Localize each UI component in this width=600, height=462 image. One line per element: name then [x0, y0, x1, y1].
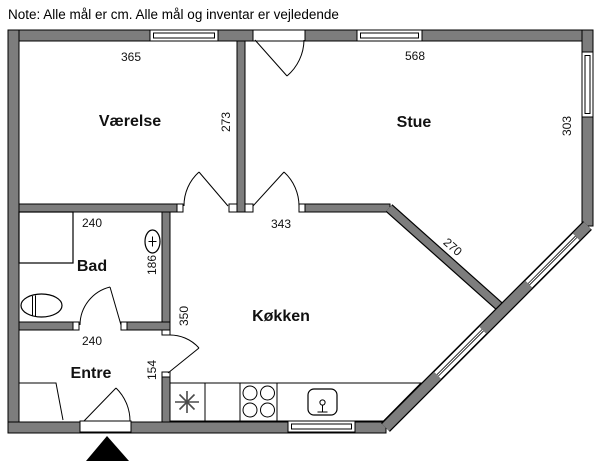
window-stue-top: [357, 30, 422, 41]
dim-vaerelse-depth: 273: [219, 112, 233, 132]
dim-stue-depth: 303: [560, 116, 574, 136]
dim-stue-width: 568: [405, 49, 425, 63]
room-label-entre: Entre: [71, 365, 112, 382]
entrance-door-opening: [80, 421, 131, 432]
balcony-door-opening: [253, 30, 305, 41]
toilet-icon: [21, 294, 62, 317]
window-vaerelse: [150, 30, 218, 41]
dim-bad-width: 240: [82, 216, 102, 230]
washbasin-icon: [145, 230, 160, 253]
dim-koekken-opening: 343: [271, 217, 291, 231]
room-label-koekken: Køkken: [252, 308, 310, 325]
wall-bad-bottom-left: [19, 322, 73, 330]
jamb: [299, 204, 305, 212]
dim-entre-passage: 154: [145, 360, 159, 380]
room-label-vaerelse: Værelse: [99, 113, 161, 130]
wall-vaerelse-stue: [237, 41, 245, 212]
wall-bad-bottom-right: [127, 322, 170, 330]
dim-entre-width: 240: [82, 334, 102, 348]
dim-vaerelse-width: 365: [121, 50, 141, 64]
room-label-bad: Bad: [77, 258, 107, 275]
jamb: [177, 204, 183, 212]
wall-stue-bottom: [300, 204, 390, 212]
jamb: [121, 322, 127, 330]
room-label-stue: Stue: [397, 114, 432, 131]
window-koekken-bottom: [288, 421, 355, 432]
dim-bad-depth: 186: [145, 255, 159, 275]
jamb: [245, 204, 253, 212]
jamb: [73, 322, 79, 330]
wall-vaerelse-bottom: [19, 204, 183, 212]
wall-left: [8, 30, 19, 433]
wall-entre-right: [162, 377, 170, 422]
shower-cabinet-icon: [19, 212, 73, 263]
floor-plan: Note: Alle mål er cm. Alle mål og invent…: [0, 0, 600, 462]
window-stue-right: [582, 52, 593, 117]
floor-plan-canvas: Note: Alle mål er cm. Alle mål og invent…: [0, 0, 600, 462]
jamb: [229, 204, 237, 212]
wall-bad-right: [162, 212, 170, 330]
dim-koekken-depth: 350: [177, 306, 191, 326]
jamb: [162, 330, 170, 335]
kitchen-sink-icon: [308, 389, 337, 415]
note-text: Note: Alle mål er cm. Alle mål og invent…: [8, 7, 339, 22]
background: [0, 0, 600, 462]
